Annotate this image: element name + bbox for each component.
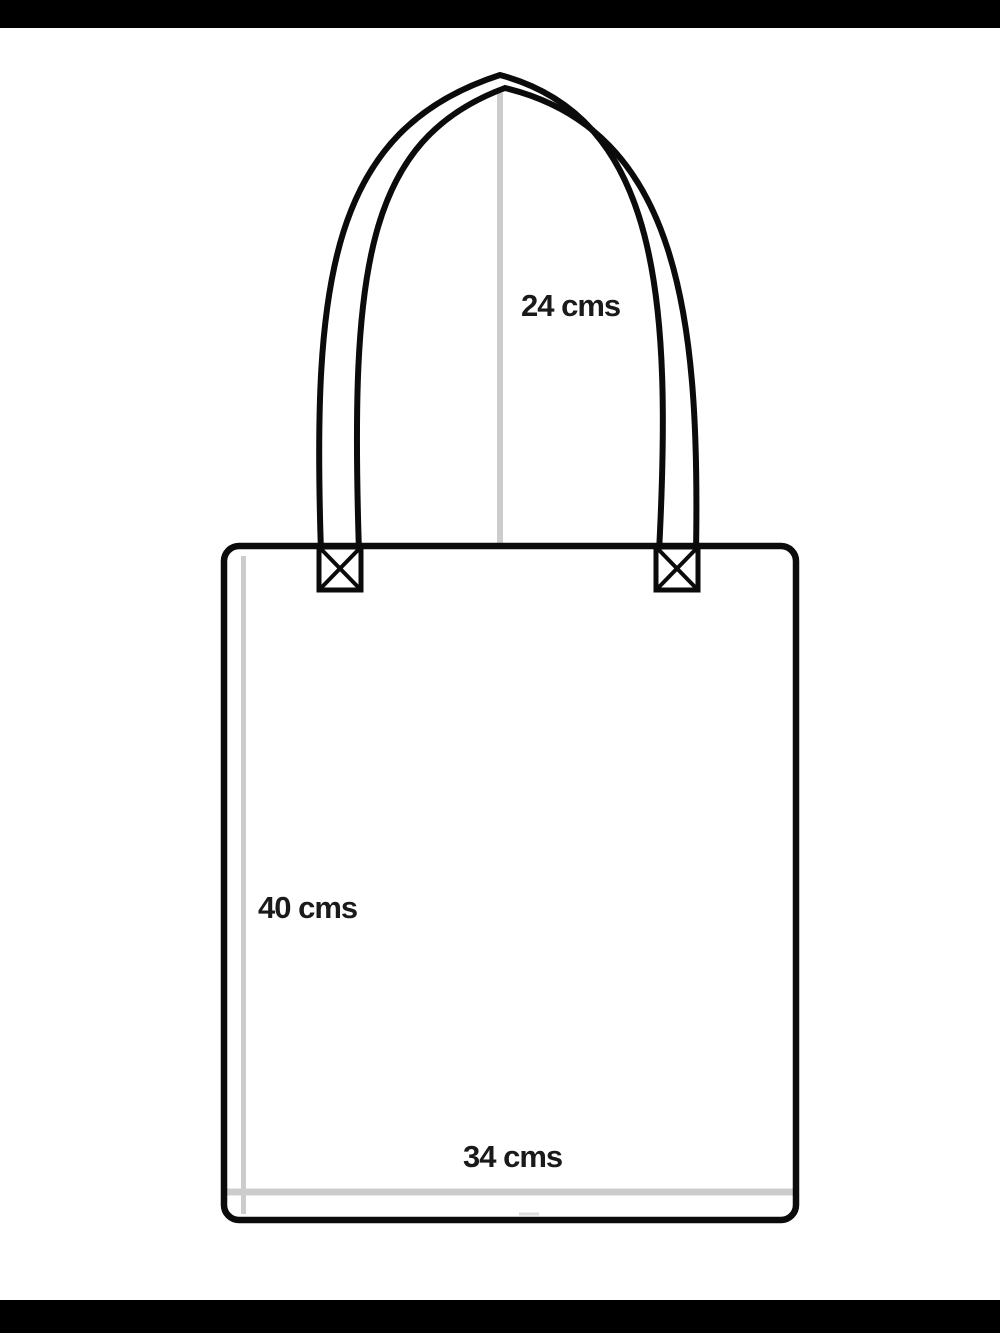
handle-height-label: 24 cms bbox=[521, 290, 620, 321]
bag-height-label: 40 cms bbox=[258, 892, 357, 923]
handle-attachment-right bbox=[656, 547, 698, 590]
tote-bag-diagram-canvas: 24 cms 40 cms 34 cms bbox=[0, 0, 1000, 1333]
bag-body-outline bbox=[224, 546, 796, 1220]
letterbox-bottom-bar bbox=[0, 1300, 1000, 1333]
handle-attachment-left bbox=[319, 547, 361, 590]
bag-width-label: 34 cms bbox=[463, 1141, 562, 1172]
tote-bag-line-drawing bbox=[0, 0, 1000, 1333]
